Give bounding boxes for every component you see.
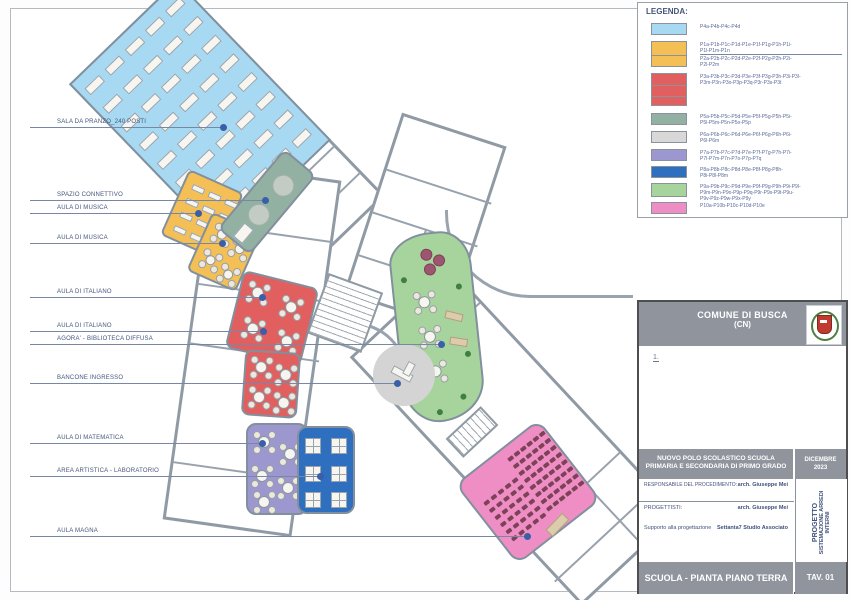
legend-swatch — [651, 23, 687, 35]
coat-of-arms-icon — [806, 305, 842, 345]
legend-swatch — [651, 41, 687, 67]
leader-line — [30, 127, 223, 128]
leader-dot — [262, 197, 269, 204]
legend-swatch — [651, 73, 687, 106]
drawing-sheet: SALA DA PRANZO_240 POSTISPAZIO CONNETTIV… — [0, 0, 850, 600]
leader-dot — [195, 210, 202, 217]
room-label: AULA MAGNA — [57, 528, 98, 534]
legend-swatch — [651, 131, 687, 143]
designers-row: PROGETTISTI: arch. Giuseppe Mei — [639, 502, 794, 522]
room-label: AGORA' - BIBLIOTECA DIFFUSA — [57, 336, 153, 342]
leader-dot — [524, 533, 531, 540]
legend-item: P6a-P6b-P6c-P6d-P6e-P6f-P6g-P6h-P6i-P6l-… — [638, 131, 849, 143]
leader-line — [30, 200, 265, 201]
room-aula-italiano-2 — [241, 349, 301, 419]
leader-dot — [394, 380, 401, 387]
title-block: COMUNE DI BUSCA (CN) 1. NUOVO POLO SCOLA… — [637, 300, 848, 594]
leader-line — [30, 443, 262, 444]
legend-swatch — [651, 183, 687, 197]
room-label: SALA DA PRANZO_240 POSTI — [57, 119, 146, 125]
legend-item: P7a-P7b-P7c-P7d-P7e-P7f-P7g-P7h-P7i-P7l-… — [638, 149, 849, 161]
legend-swatch — [651, 166, 687, 178]
legend-item-code: P1a-P1b-P1c-P1d-P1e-P1f-P1g-P1h-P1i-P1l-… — [700, 42, 842, 54]
leader-line — [30, 476, 320, 477]
side-label-cell: PROGETTO SISTEMAZIONE ARREDI INTERNI — [795, 479, 847, 562]
legend-item: P8a-P8b-P8c-P8d-P8e-P8f-P8g-P8h-P8i-P8l-… — [638, 166, 849, 178]
leader-line — [30, 243, 222, 244]
support-row: Supporto alla progettazione Settanta7 St… — [639, 522, 794, 562]
legend-item: P5a-P5b-P5c-P5d-P5e-P5f-P5g-P5h-P5i-P5l-… — [638, 113, 849, 125]
legend-swatch — [651, 202, 687, 214]
legend-panel: LEGENDA: P4a-P4b-P4c-P4dP1a-P1b-P1c-P1d-… — [637, 2, 848, 218]
leader-line — [30, 331, 263, 332]
legend-swatch — [651, 149, 687, 161]
legend-item: P9a-P9b-P9c-P9d-P9e-P9f-P9g-P9h-P9i-P9l-… — [638, 183, 849, 197]
legend-item-code: P4a-P4b-P4c-P4d — [700, 24, 842, 30]
sheet-title: SCUOLA - PIANTA PIANO TERRA — [639, 562, 794, 594]
responsible-row: RESPONSABILE DEL PROCEDIMENTO: arch. Giu… — [639, 479, 794, 502]
legend-title: LEGENDA: — [646, 7, 688, 16]
leader-dot — [259, 294, 266, 301]
leader-line — [30, 536, 527, 537]
date-cell: DICEMBRE 2023 — [795, 449, 846, 479]
room-bancone-ingresso — [373, 344, 435, 406]
legend-item-code: P7a-P7b-P7c-P7d-P7e-P7f-P7g-P7h-P7i-P7l-… — [700, 150, 842, 162]
legend-item: P3a-P3b-P3c-P3d-P3e-P3f-P3g-P3h-P3i-P3l-… — [638, 73, 849, 106]
legend-item: P1a-P1b-P1c-P1d-P1e-P1f-P1g-P1h-P1i-P1l-… — [638, 41, 849, 67]
room-label: BANCONE INGRESSO — [57, 375, 123, 381]
project-side-label: PROGETTO SISTEMAZIONE ARREDI INTERNI — [812, 481, 831, 564]
room-label: SPAZIO CONNETTIVO — [57, 192, 123, 198]
legend-item-code: P10a-P10b-P10c-P10d-P10e — [700, 203, 842, 209]
leader-dot — [259, 440, 266, 447]
leader-line — [30, 213, 198, 214]
sheet-number: TAV. 01 — [795, 562, 846, 594]
legend-item-code: P8a-P8b-P8c-P8d-P8e-P8f-P8g-P8h-P8i-P8l-… — [700, 167, 842, 179]
leader-dot — [438, 341, 445, 348]
leader-dot — [317, 473, 324, 480]
room-label: AULA DI ITALIANO — [57, 323, 112, 329]
leader-line — [30, 297, 262, 298]
room-area-artistica — [297, 426, 355, 514]
note-mark: 1. — [653, 354, 659, 362]
legend-item: P4a-P4b-P4c-P4d — [638, 23, 849, 35]
legend-item-code: P5a-P5b-P5c-P5d-P5e-P5f-P5g-P5h-P5i-P5l-… — [700, 114, 842, 126]
room-label: AULA DI ITALIANO — [57, 289, 112, 295]
legend-item-code: P3a-P3b-P3c-P3d-P3e-P3f-P3g-P3h-P3i-P3l-… — [700, 74, 842, 86]
leader-dot — [260, 328, 267, 335]
legend-item-code: P2a-P2b-P2c-P2d-P2e-P2f-P2g-P2h-P2i-P2l-… — [700, 56, 842, 68]
leader-dot — [220, 124, 227, 131]
leader-line — [30, 383, 397, 384]
legend-item-code: P9a-P9b-P9c-P9d-P9e-P9f-P9g-P9h-P9i-P9l-… — [700, 184, 842, 202]
room-label: AREA ARTISTICA - LABORATORIO — [57, 468, 159, 474]
legend-swatch — [651, 113, 687, 125]
leader-dot — [219, 240, 226, 247]
leader-line — [30, 344, 441, 345]
room-label: AULA DI MUSICA — [57, 205, 108, 211]
room-label: AULA DI MUSICA — [57, 235, 108, 241]
legend-item-code: P6a-P6b-P6c-P6d-P6e-P6f-P6g-P6h-P6i-P6l-… — [700, 132, 842, 144]
room-label: AULA DI MATEMATICA — [57, 435, 124, 441]
project-title: NUOVO POLO SCOLASTICO SCUOLA PRIMARIA E … — [639, 449, 794, 479]
legend-item: P10a-P10b-P10c-P10d-P10e — [638, 202, 849, 214]
